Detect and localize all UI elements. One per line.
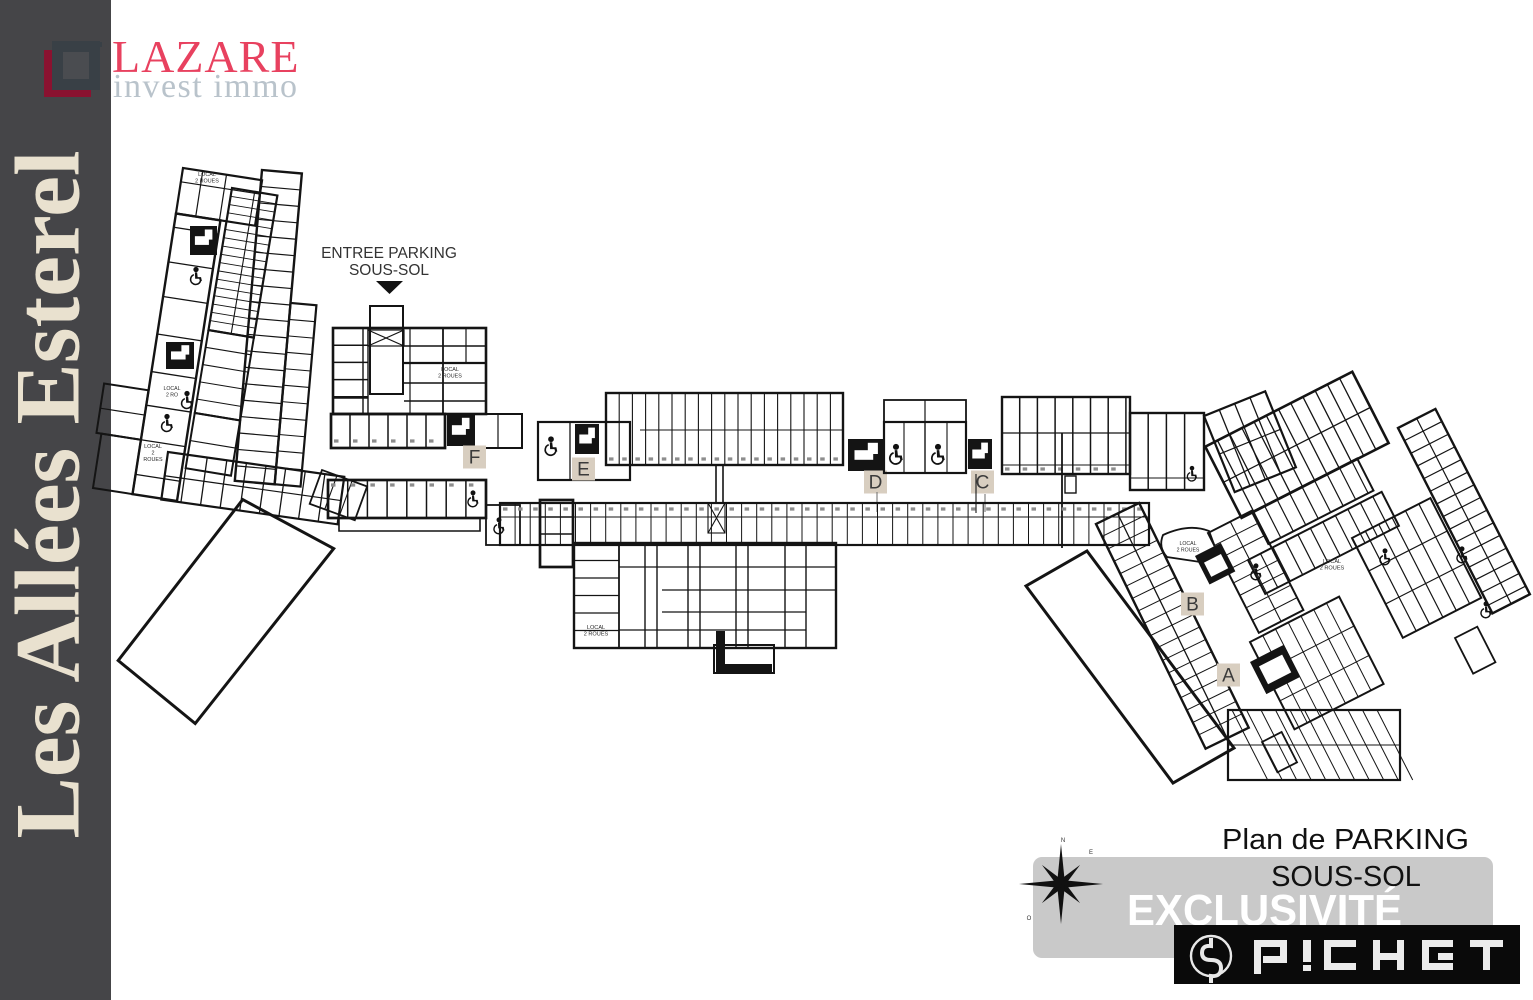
svg-text:LOCAL: LOCAL	[144, 444, 162, 450]
svg-text:O: O	[1027, 916, 1032, 922]
svg-text:D: D	[869, 473, 883, 494]
svg-text:A: A	[1222, 666, 1235, 687]
svg-text:LOCAL: LOCAL	[587, 625, 605, 631]
svg-text:B: B	[1186, 595, 1199, 616]
svg-text:C: C	[976, 473, 990, 494]
svg-text:2 ROUES: 2 ROUES	[1177, 547, 1200, 553]
svg-text:LOCAL: LOCAL	[441, 367, 459, 373]
svg-text:2 ROUES: 2 ROUES	[584, 632, 609, 638]
svg-text:LOCAL: LOCAL	[1179, 541, 1196, 547]
svg-text:LOCAL: LOCAL	[1323, 559, 1341, 565]
svg-text:E: E	[577, 460, 590, 481]
svg-text:LOCAL: LOCAL	[198, 172, 216, 178]
svg-text:Plan de PARKING: Plan de PARKING	[1222, 824, 1469, 856]
svg-text:LOCAL: LOCAL	[163, 386, 180, 392]
svg-text:SOUS-SOL: SOUS-SOL	[349, 262, 429, 279]
svg-text:2 ROUES: 2 ROUES	[195, 179, 219, 185]
svg-text:ROUES: ROUES	[143, 457, 163, 463]
svg-text:F: F	[469, 448, 481, 469]
svg-text:2 ROUES: 2 ROUES	[438, 374, 462, 380]
svg-text:2 ROUES: 2 ROUES	[1320, 566, 1345, 572]
svg-text:E: E	[1089, 850, 1093, 856]
svg-text:2 RO: 2 RO	[166, 392, 178, 398]
svg-text:N: N	[1061, 838, 1065, 844]
svg-text:ENTREE PARKING: ENTREE PARKING	[321, 245, 457, 262]
svg-text:2: 2	[152, 451, 155, 457]
